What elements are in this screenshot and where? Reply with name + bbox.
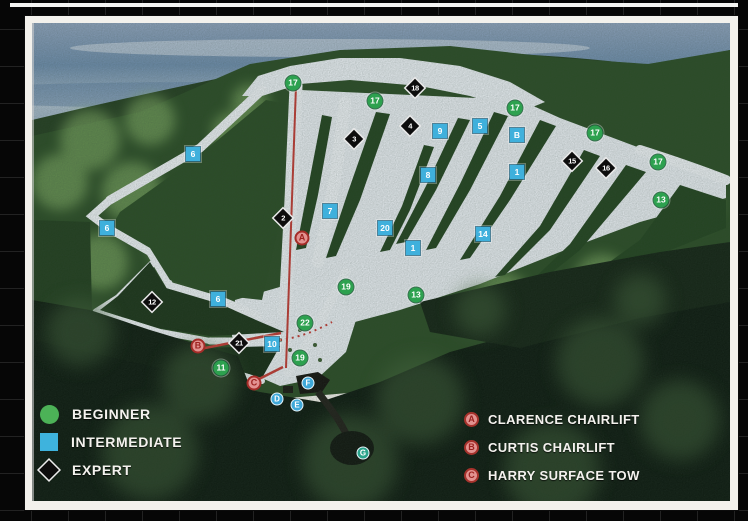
lift-label: HARRY SURFACE TOW (488, 468, 640, 483)
trail-marker-17: 17 (286, 76, 301, 91)
facility-marker-D: D (271, 393, 284, 406)
lift-legend: A CLARENCE CHAIRLIFT B CURTIS CHAIRLIFT … (464, 410, 640, 484)
trail-marker-9: 9 (433, 124, 447, 138)
legend-label: BEGINNER (72, 406, 151, 422)
lift-label: CLARENCE CHAIRLIFT (488, 412, 640, 427)
trail-marker-6: 6 (211, 292, 225, 306)
trail-marker-20: 20 (378, 221, 392, 235)
trail-marker-8: 8 (421, 168, 435, 182)
trail-marker-7: 7 (323, 204, 337, 218)
lift-legend-item-harry: C HARRY SURFACE TOW (464, 466, 640, 484)
trail-marker-17: 17 (508, 101, 523, 116)
trail-marker-11: 11 (214, 361, 229, 376)
lift-marker-B: B (191, 339, 206, 354)
trail-marker-13: 13 (654, 193, 669, 208)
trail-marker-1: 1 (406, 241, 420, 255)
trail-marker-17: 17 (651, 155, 666, 170)
legend-item-beginner: BEGINNER (40, 404, 182, 424)
trail-marker-17: 17 (368, 94, 383, 109)
lift-marker-A: A (295, 231, 310, 246)
lift-c-badge-icon: C (464, 468, 479, 483)
trail-marker-10: 10 (265, 337, 279, 351)
trail-marker-18: 18 (406, 79, 424, 97)
facility-marker-E: E (291, 399, 304, 412)
beginner-circle-icon (40, 405, 59, 424)
lift-marker-C: C (247, 376, 262, 391)
lift-legend-item-curtis: B CURTIS CHAIRLIFT (464, 438, 640, 456)
trail-marker-13: 13 (409, 288, 424, 303)
trail-marker-3: 3 (345, 130, 363, 148)
legend-label: INTERMEDIATE (71, 434, 182, 450)
lift-label: CURTIS CHAIRLIFT (488, 440, 615, 455)
trail-marker-4: 4 (401, 117, 419, 135)
lift-a-badge-icon: A (464, 412, 479, 427)
legend-item-intermediate: INTERMEDIATE (40, 432, 182, 452)
facility-marker-G: G (357, 447, 370, 460)
trail-marker-2: 2 (274, 209, 292, 227)
lift-b-badge-icon: B (464, 440, 479, 455)
trail-marker-1: 1 (510, 165, 524, 179)
intermediate-square-icon (40, 433, 58, 451)
trail-marker-B: B (510, 128, 524, 142)
legend-label: EXPERT (72, 462, 132, 478)
postcard-photo: 17171717171313191922116667958B1120141018… (0, 0, 748, 521)
trail-marker-6: 6 (100, 221, 114, 235)
trail-marker-5: 5 (473, 119, 487, 133)
trail-marker-19: 19 (339, 280, 354, 295)
trail-marker-21: 21 (230, 334, 248, 352)
trail-marker-16: 16 (597, 159, 615, 177)
trail-marker-17: 17 (588, 126, 603, 141)
legend-item-expert: EXPERT (40, 460, 182, 480)
lift-legend-item-clarence: A CLARENCE CHAIRLIFT (464, 410, 640, 428)
trail-marker-14: 14 (476, 227, 490, 241)
trail-marker-22: 22 (298, 316, 313, 331)
trail-marker-6: 6 (186, 147, 200, 161)
trail-marker-12: 12 (143, 293, 161, 311)
expert-diamond-icon (39, 460, 59, 480)
difficulty-legend: BEGINNER INTERMEDIATE EXPERT (40, 404, 182, 480)
facility-marker-F: F (302, 377, 315, 390)
trail-marker-19: 19 (293, 351, 308, 366)
trail-marker-15: 15 (563, 152, 581, 170)
